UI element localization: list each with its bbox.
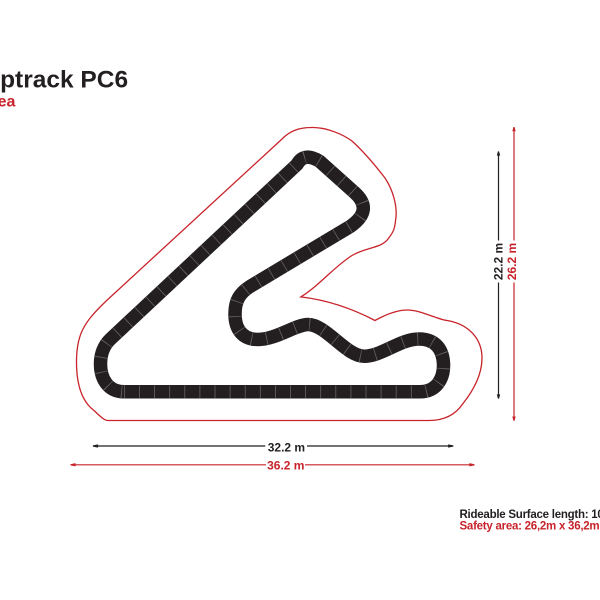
svg-text:Rideable Surface length: 105 m: Rideable Surface length: 105 m [460, 509, 600, 521]
svg-text:Pumptrack PC6: Pumptrack PC6 [0, 67, 128, 94]
svg-text:32.2 m: 32.2 m [268, 440, 305, 454]
svg-text:26.2 m: 26.2 m [505, 243, 519, 280]
svg-text:Safety area: 26,2m x 36,2m = 9: Safety area: 26,2m x 36,2m = 949 m2 [460, 521, 600, 533]
svg-text:22.2 m: 22.2 m [491, 243, 505, 280]
svg-text:36.2 m: 36.2 m [267, 459, 304, 473]
svg-text:Safety area: Safety area [0, 94, 15, 111]
